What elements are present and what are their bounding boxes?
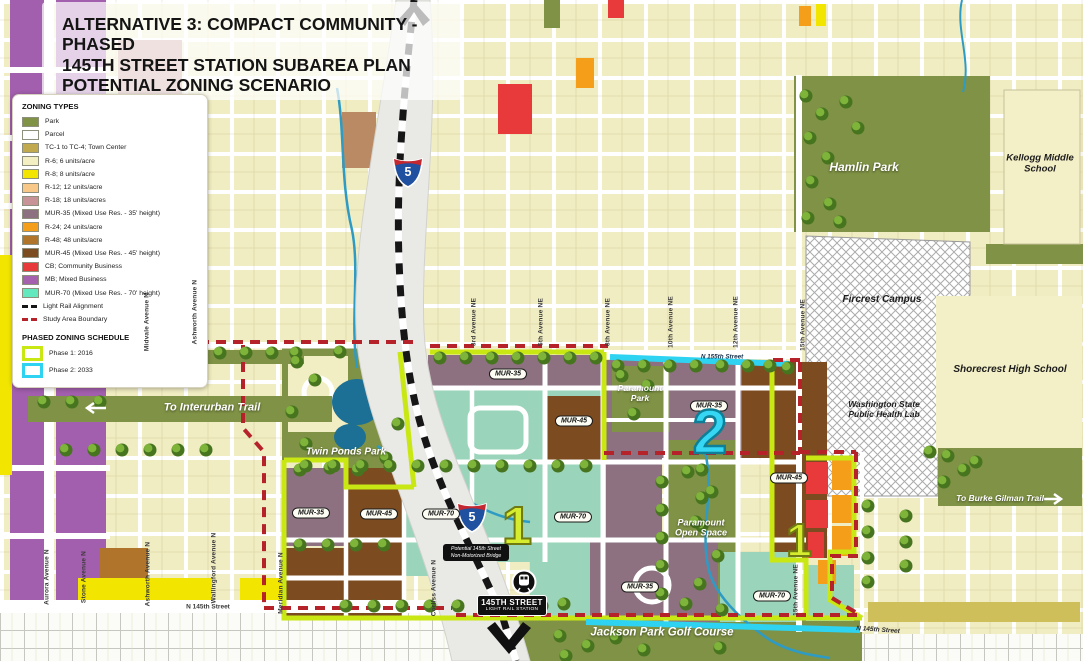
swatch-parcel <box>22 130 39 140</box>
legend-item-r24: R-24; 24 units/acre <box>22 221 198 234</box>
swatch-r48 <box>22 235 39 245</box>
zone-badge-mur70-a: MUR-70 <box>422 509 460 520</box>
title-line-2: 145TH STREET STATION SUBAREA PLAN <box>62 55 492 75</box>
street-label-15th-ave-n: 15th Avenue NE <box>800 299 807 351</box>
swatch-light-rail-dash <box>22 305 37 308</box>
bridge-note-line-1: Potential 145th Street <box>444 546 508 553</box>
street-label-8th-ave: 8th Avenue NE <box>605 298 612 346</box>
interstate-5-number-south: 5 <box>469 510 476 524</box>
label-shorecrest-high-school: Shorecrest High School <box>953 364 1066 376</box>
legend-zoning-title: ZONING TYPES <box>22 102 198 111</box>
swatch-r8 <box>22 169 39 179</box>
zoning-map-canvas: ALTERNATIVE 3: COMPACT COMMUNITY - PHASE… <box>0 0 1083 661</box>
label-hamlin-park: Hamlin Park <box>829 161 898 175</box>
zone-badge-mur70-b: MUR-70 <box>554 512 592 523</box>
street-label-5th-ave: 5th Avenue NE <box>538 298 545 346</box>
label-interurban-trail: To Interurban Trail <box>164 402 261 415</box>
station-badge: 145TH STREET LIGHT RAIL STATION <box>477 595 547 616</box>
swatch-mb <box>22 275 39 285</box>
zone-badge-mur35-a: MUR-35 <box>489 369 527 380</box>
swatch-cb <box>22 262 39 272</box>
bridge-note-line-2: Non-Motorized Bridge <box>444 553 508 560</box>
swatch-tc <box>22 143 39 153</box>
swatch-r24 <box>22 222 39 232</box>
zone-badge-mur45-b: MUR-45 <box>770 473 808 484</box>
swatch-phase-2 <box>22 363 43 378</box>
legend-item-park: Park <box>22 115 198 128</box>
legend-item-r6: R-6; 6 units/acre <box>22 155 198 168</box>
legend-item-mur45: MUR-45 (Mixed Use Res. - 45' height) <box>22 247 198 260</box>
swatch-mur70 <box>22 288 39 298</box>
swatch-mur35 <box>22 209 39 219</box>
street-label-stone: Stone Avenue N <box>81 551 88 603</box>
street-label-155th: N 155th Street <box>701 354 743 361</box>
light-rail-station-icon <box>513 571 536 594</box>
street-label-wallingford: Wallingford Avenue N <box>211 533 218 604</box>
swatch-phase-1 <box>22 346 43 361</box>
street-label-corliss: Corliss Avenue N <box>431 560 438 617</box>
label-fircrest-campus: Fircrest Campus <box>843 294 922 306</box>
legend-item-r8: R-8; 8 units/acre <box>22 168 198 181</box>
swatch-r12 <box>22 183 39 193</box>
zone-badge-mur70-c: MUR-70 <box>753 591 791 602</box>
legend-phase-2: Phase 2: 2033 <box>22 362 198 379</box>
phase-marker-1-east: 1 <box>786 517 812 563</box>
map-title: ALTERNATIVE 3: COMPACT COMMUNITY - PHASE… <box>62 14 492 95</box>
label-paramount-park: Paramount Park <box>614 384 666 404</box>
street-label-midvale: Midvale Avenue N <box>144 293 151 351</box>
label-jackson-park-golf: Jackson Park Golf Course <box>590 626 733 639</box>
street-label-ashworth-s: Ashworth Avenue N <box>145 542 152 607</box>
legend-item-r48: R-48; 48 units/acre <box>22 234 198 247</box>
legend-phased-title: PHASED ZONING SCHEDULE <box>22 333 198 342</box>
legend-item-mur35: MUR-35 (Mixed Use Res. - 35' height) <box>22 207 198 220</box>
swatch-mur45 <box>22 248 39 258</box>
legend-panel: ZONING TYPES Park Parcel TC-1 to TC-4; T… <box>12 94 208 388</box>
zone-badge-mur35-d: MUR-35 <box>621 582 659 593</box>
zone-badge-mur35-c: MUR-35 <box>292 508 330 519</box>
street-label-3rd-ave: 3rd Avenue NE <box>471 298 478 346</box>
title-line-3: POTENTIAL ZONING SCENARIO <box>62 75 492 95</box>
station-subtitle: LIGHT RAIL STATION <box>478 607 546 612</box>
zone-badge-mur45-a: MUR-45 <box>555 416 593 427</box>
legend-item-tc: TC-1 to TC-4; Town Center <box>22 141 198 154</box>
swatch-park <box>22 117 39 127</box>
street-label-12th-ave: 12th Avenue NE <box>733 296 740 348</box>
phase-marker-2: 2 <box>693 402 727 464</box>
street-label-15th-ave-s: 15th Avenue NE <box>793 564 800 616</box>
legend-item-r18: R-18; 18 units/acres <box>22 194 198 207</box>
swatch-r18 <box>22 196 39 206</box>
zone-badge-mur45-c: MUR-45 <box>360 509 398 520</box>
street-label-10th-ave: 10th Avenue NE <box>668 296 675 348</box>
station-name: 145TH STREET <box>478 598 546 607</box>
legend-phase-1: Phase 1: 2016 <box>22 345 198 362</box>
legend-item-r12: R-12; 12 units/acre <box>22 181 198 194</box>
street-label-ashworth-n: Ashworth Avenue N <box>192 280 199 345</box>
label-burke-gilman-trail: To Burke Gilman Trail <box>956 494 1044 504</box>
legend-item-light-rail: Light Rail Alignment <box>22 300 198 313</box>
street-label-145th-w: N 145th Street <box>186 604 230 611</box>
street-label-aurora: Aurora Avenue N <box>44 549 51 605</box>
label-wa-public-health-lab: Washington State Public Health Lab <box>836 399 932 419</box>
interstate-5-number-north: 5 <box>405 165 412 179</box>
legend-item-parcel: Parcel <box>22 128 198 141</box>
title-line-1: ALTERNATIVE 3: COMPACT COMMUNITY - PHASE… <box>62 14 492 55</box>
legend-item-cb: CB; Community Business <box>22 260 198 273</box>
bridge-note-badge: Potential 145th Street Non-Motorized Bri… <box>443 544 509 561</box>
legend-item-mb: MB; Mixed Business <box>22 273 198 286</box>
label-paramount-open-space: Paramount Open Space <box>668 518 734 539</box>
label-twin-ponds-park: Twin Ponds Park <box>306 446 386 458</box>
swatch-study-boundary-dash <box>22 318 37 321</box>
street-label-meridian: Meridian Avenue N <box>278 552 285 613</box>
legend-item-study-boundary: Study Area Boundary <box>22 313 198 326</box>
label-kellogg-middle-school: Kellogg Middle School <box>1003 153 1077 176</box>
swatch-r6 <box>22 156 39 166</box>
legend-item-mur70: MUR-70 (Mixed Use Res. - 70' height) <box>22 286 198 299</box>
